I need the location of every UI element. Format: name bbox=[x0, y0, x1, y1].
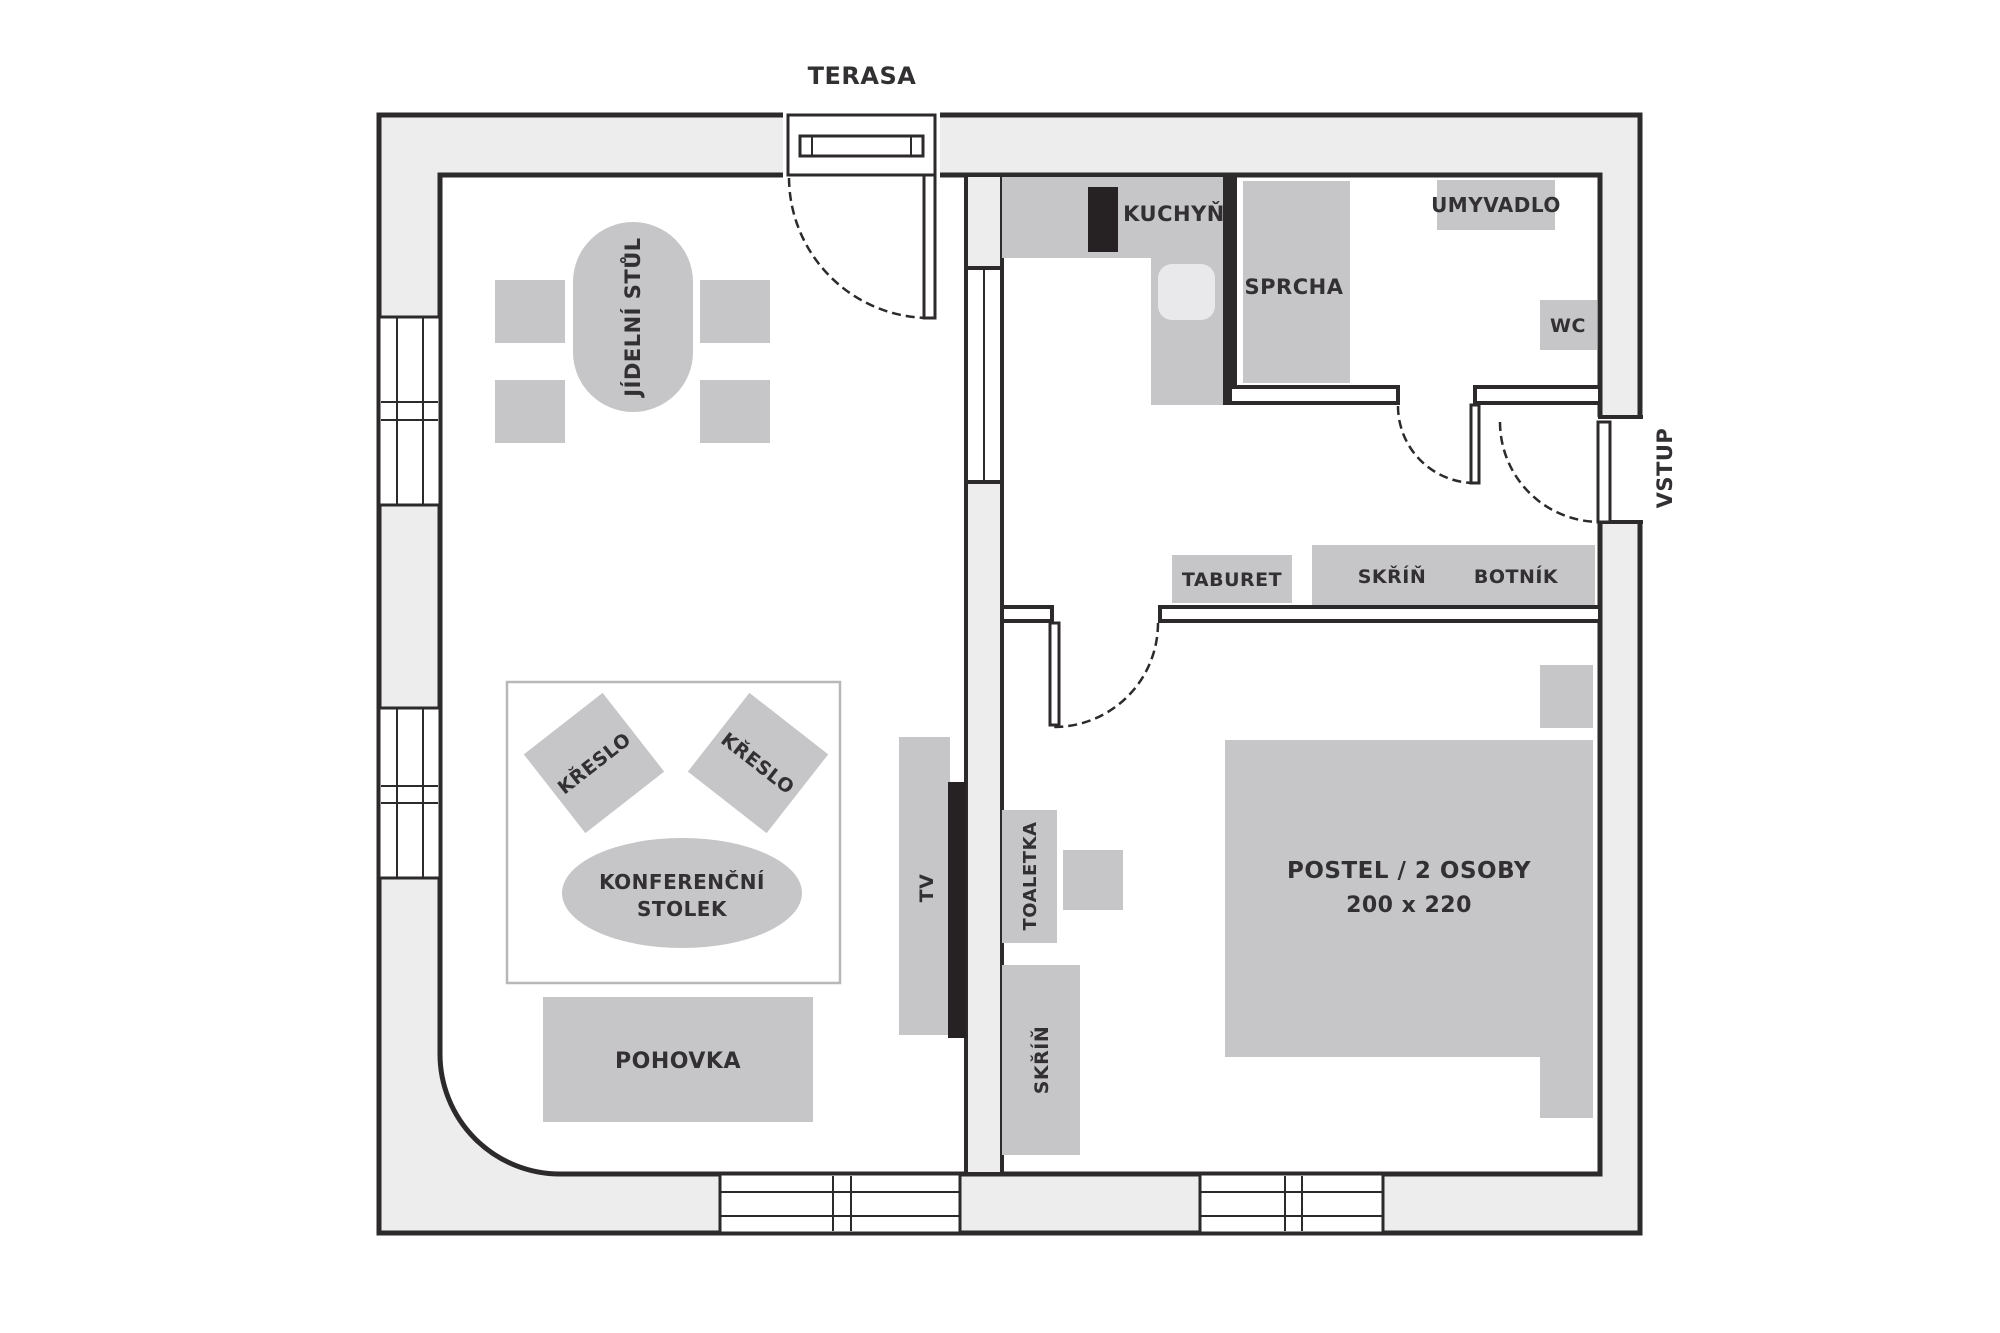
kitchen-label: KUCHYŇ bbox=[1123, 201, 1225, 226]
dining-chair bbox=[700, 280, 770, 343]
stove bbox=[1088, 187, 1118, 252]
bathroom-wall-left bbox=[1223, 175, 1237, 405]
partition-living-wall-lower bbox=[966, 482, 1002, 1174]
nightstand-bottom bbox=[1540, 1055, 1593, 1118]
entrance-door-leaf bbox=[1598, 422, 1610, 522]
tv-screen bbox=[948, 782, 966, 1038]
terrace-door-slider bbox=[800, 136, 923, 156]
dining-chair bbox=[495, 380, 565, 443]
bedroom-door-leaf bbox=[1050, 623, 1059, 725]
bedroom-door bbox=[1050, 623, 1158, 727]
bathroom-door bbox=[1398, 405, 1479, 483]
terrace-label: TERASA bbox=[808, 62, 917, 90]
bedroom-door-swing-arc bbox=[1054, 623, 1158, 727]
dining-chair bbox=[495, 280, 565, 343]
coffee-table-label-line2: STOLEK bbox=[637, 897, 728, 921]
hall-bedroom-wall-right bbox=[1160, 607, 1600, 621]
hall-stool-label: TABURET bbox=[1182, 569, 1282, 591]
terrace-door-leaf bbox=[924, 175, 935, 318]
shower-label: SPRCHA bbox=[1245, 275, 1344, 299]
shoe-rack-label: BOTNÍK bbox=[1474, 565, 1559, 588]
entrance-door bbox=[1500, 417, 1645, 522]
bathroom-wall-bottom-right bbox=[1475, 387, 1600, 403]
dressing-stool bbox=[1063, 850, 1123, 910]
floor-plan: KŘESLO KŘESLO TERASA VSTUP KUCHYŇ SPRCHA… bbox=[0, 0, 2000, 1333]
terrace-door bbox=[783, 110, 940, 318]
partition-living-wall-stub bbox=[966, 175, 1002, 268]
nightstand-top bbox=[1540, 665, 1593, 728]
entrance-label: VSTUP bbox=[1653, 428, 1677, 509]
hall-bedroom-wall-left bbox=[1002, 607, 1052, 621]
dressing-table-label: TOALETKA bbox=[1020, 822, 1041, 931]
window-left-lower bbox=[379, 708, 440, 878]
partition-living-glazing bbox=[966, 268, 1002, 482]
hall-wardrobe-label: SKŘÍŇ bbox=[1358, 565, 1427, 588]
bathroom-wall-bottom-left bbox=[1230, 387, 1398, 403]
window-bottom-living bbox=[720, 1174, 960, 1233]
window-bottom-bedroom bbox=[1200, 1174, 1383, 1233]
dining-table-label: JÍDELNÍ STŮL bbox=[620, 237, 645, 398]
bed-label-line2: 200 x 220 bbox=[1346, 893, 1472, 918]
sofa-label: POHOVKA bbox=[615, 1049, 741, 1074]
entrance-door-swing-arc bbox=[1500, 422, 1600, 522]
bedroom-wardrobe-label: SKŘÍŇ bbox=[1030, 1026, 1053, 1095]
tv-label: TV bbox=[916, 874, 938, 903]
dining-chair bbox=[700, 380, 770, 443]
coffee-table-label-line1: KONFERENČNÍ bbox=[599, 870, 765, 894]
bathroom-door-swing-arc bbox=[1398, 406, 1475, 483]
bathroom-door-leaf bbox=[1471, 405, 1479, 483]
washbasin-label: UMYVADLO bbox=[1431, 193, 1561, 217]
kitchen-sink bbox=[1158, 264, 1215, 320]
terrace-door-swing-arc bbox=[789, 178, 930, 318]
wc-label: WC bbox=[1550, 315, 1586, 337]
window-left-upper bbox=[379, 317, 440, 505]
bed-label-line1: POSTEL / 2 OSOBY bbox=[1287, 858, 1531, 884]
